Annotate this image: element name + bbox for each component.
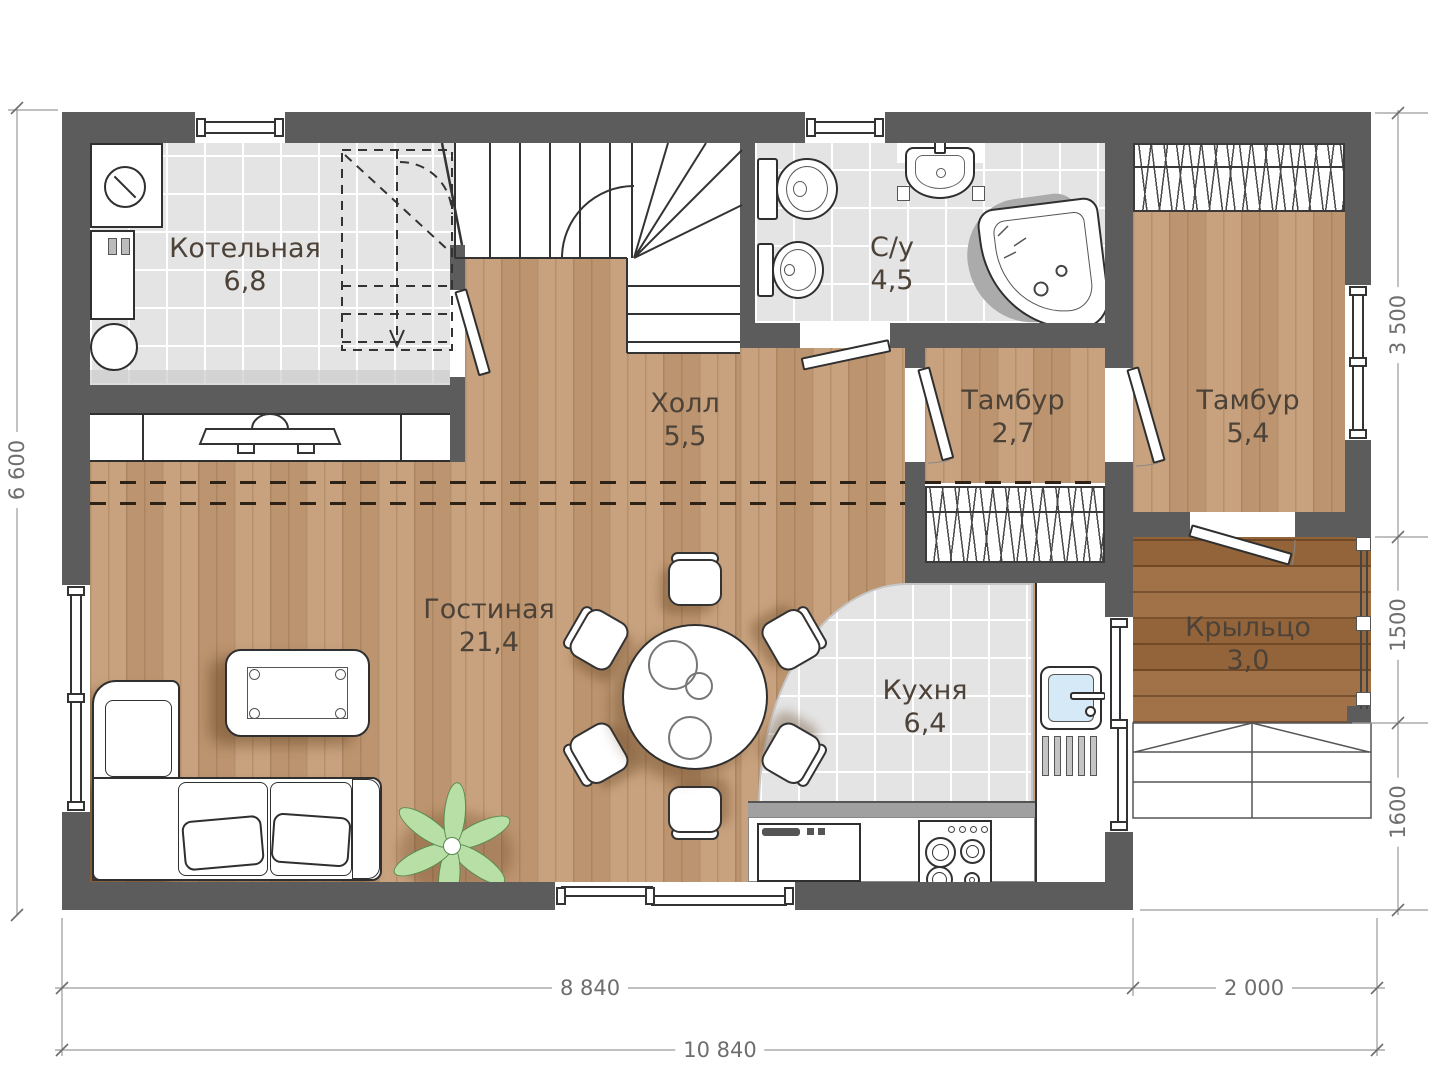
kitchen-faucet (1070, 692, 1106, 700)
dining-table-decor (668, 716, 712, 760)
beam-dashed-line (925, 481, 1105, 484)
toilet-tank (757, 158, 778, 220)
tv-console-divider (142, 415, 144, 460)
window (195, 112, 285, 143)
room-name: С/у (870, 232, 914, 265)
room-name: Тамбур (961, 385, 1064, 418)
room-label-gostinaya: Гостиная 21,4 (423, 594, 555, 660)
stove-burner (960, 839, 985, 864)
dish-drainer (1042, 736, 1104, 776)
coffee-table-dot (335, 708, 346, 719)
coffee-table-dot (335, 669, 346, 680)
room-area: 6,4 (882, 708, 967, 741)
wall-segment (1105, 832, 1133, 882)
stove (918, 820, 992, 888)
room-name: Кухня (882, 675, 967, 708)
beam-dashed-line (90, 481, 905, 484)
floor-hall-a (465, 258, 627, 882)
dimension-label-left: 6 600 (5, 432, 29, 508)
railing-post (1356, 692, 1371, 706)
stove-burner (925, 837, 956, 868)
dishwasher (757, 823, 861, 882)
railing-post (1356, 616, 1371, 631)
window (62, 585, 90, 812)
kitchen-counter-back (748, 801, 1035, 817)
wall-segment (450, 245, 465, 290)
coffee-table-dot (249, 708, 260, 719)
coffee-table-inner (247, 667, 348, 719)
beam-dashed-line (90, 502, 905, 505)
railing-post (1356, 537, 1371, 551)
dimension-label-right-top: 3 500 (1386, 287, 1410, 363)
room-label-kuhnya: Кухня 6,4 (882, 675, 967, 741)
tv-console-divider (400, 415, 402, 460)
room-name: Котельная (169, 233, 321, 266)
toilet-drain (793, 181, 807, 197)
floor-tambur-big (1133, 212, 1345, 512)
room-name: Холл (650, 388, 720, 421)
wall-segment (795, 882, 1133, 910)
wardrobe (1133, 143, 1345, 212)
dimension-label-right-bottom: 1600 (1386, 777, 1410, 846)
bidet-drain (784, 264, 795, 276)
room-label-tambur-big: Тамбур 5,4 (1196, 385, 1299, 451)
coffee-table-dot (249, 669, 260, 680)
dimension-label-bottom-total: 10 840 (675, 1038, 764, 1062)
sofa-pillow (270, 812, 351, 867)
wall-segment (905, 348, 925, 368)
stove-knob (959, 826, 966, 833)
boiler-cabinet-vent (121, 238, 130, 255)
boiler-cabinet-vent (108, 238, 117, 255)
kitchen-faucet-knob (1085, 706, 1096, 717)
dining-chair (666, 552, 724, 606)
wall-segment (62, 143, 90, 585)
room-area: 2,7 (961, 418, 1064, 451)
wall-segment (1105, 143, 1133, 368)
stairs-upper-flight (455, 143, 745, 258)
wall-segment (890, 323, 1105, 348)
wall-segment (1133, 512, 1190, 537)
window (555, 882, 795, 910)
sofa-armrest (352, 779, 380, 879)
room-name: Тамбур (1196, 385, 1299, 418)
wall-segment (62, 882, 555, 910)
wall-segment (885, 112, 1371, 143)
dimension-label-right-middle: 1500 (1386, 590, 1410, 659)
room-label-tambur-small: Тамбур 2,7 (961, 385, 1064, 451)
stove-knob (970, 826, 977, 833)
porch-steps (1133, 723, 1371, 818)
room-area: 5,4 (1196, 418, 1299, 451)
room-area: 3,0 (1185, 645, 1311, 678)
wall-segment (62, 112, 195, 143)
stove-knob (948, 826, 955, 833)
room-area: 21,4 (423, 627, 555, 660)
window (1345, 285, 1371, 440)
floor-plan: Котельная 6,8 С/у 4,5 Холл 5,5 Тамбур 2,… (0, 0, 1440, 1080)
wall-segment (1345, 143, 1371, 285)
dishwasher-handle (762, 828, 800, 836)
room-label-su: С/у 4,5 (870, 232, 914, 298)
wall-segment (1105, 462, 1133, 617)
dining-table-decor (685, 672, 713, 700)
dishwasher-button (818, 828, 825, 835)
boiler-tank (90, 323, 138, 371)
stove-knob (981, 826, 988, 833)
wall-segment (285, 112, 805, 143)
wall-segment (1295, 512, 1371, 537)
room-name: Гостиная (423, 594, 555, 627)
dining-chair (666, 786, 724, 840)
room-area: 4,5 (870, 265, 914, 298)
wall-segment (740, 323, 800, 348)
wardrobe (925, 486, 1105, 563)
room-area: 5,5 (650, 421, 720, 454)
sofa-chaise-cushion (105, 700, 172, 777)
sofa-pillow (181, 815, 265, 872)
wall-segment (450, 377, 465, 462)
tv-console (88, 413, 452, 462)
room-name: Крыльцо (1185, 612, 1311, 645)
wall-segment (740, 143, 755, 323)
bath-sink-tab (972, 186, 985, 201)
room-label-krylco: Крыльцо 3,0 (1185, 612, 1311, 678)
bath-sink-tab (897, 186, 910, 201)
stairs-lower-flight (627, 258, 740, 353)
dimension-label-bottom-porch: 2 000 (1216, 976, 1292, 1000)
wall-segment (90, 385, 465, 413)
dimension-label-bottom-main: 8 840 (552, 976, 628, 1000)
floor-boiler-shadow (90, 370, 455, 385)
room-area: 6,8 (169, 266, 321, 299)
dishwasher-button (807, 828, 814, 835)
room-label-holl: Холл 5,5 (650, 388, 720, 454)
room-label-kotelnaya: Котельная 6,8 (169, 233, 321, 299)
window (805, 112, 885, 143)
window (1105, 617, 1133, 832)
wall-segment (905, 563, 1107, 583)
kitchen-counter-right (1035, 583, 1105, 882)
bath-sink-drain (936, 168, 946, 178)
